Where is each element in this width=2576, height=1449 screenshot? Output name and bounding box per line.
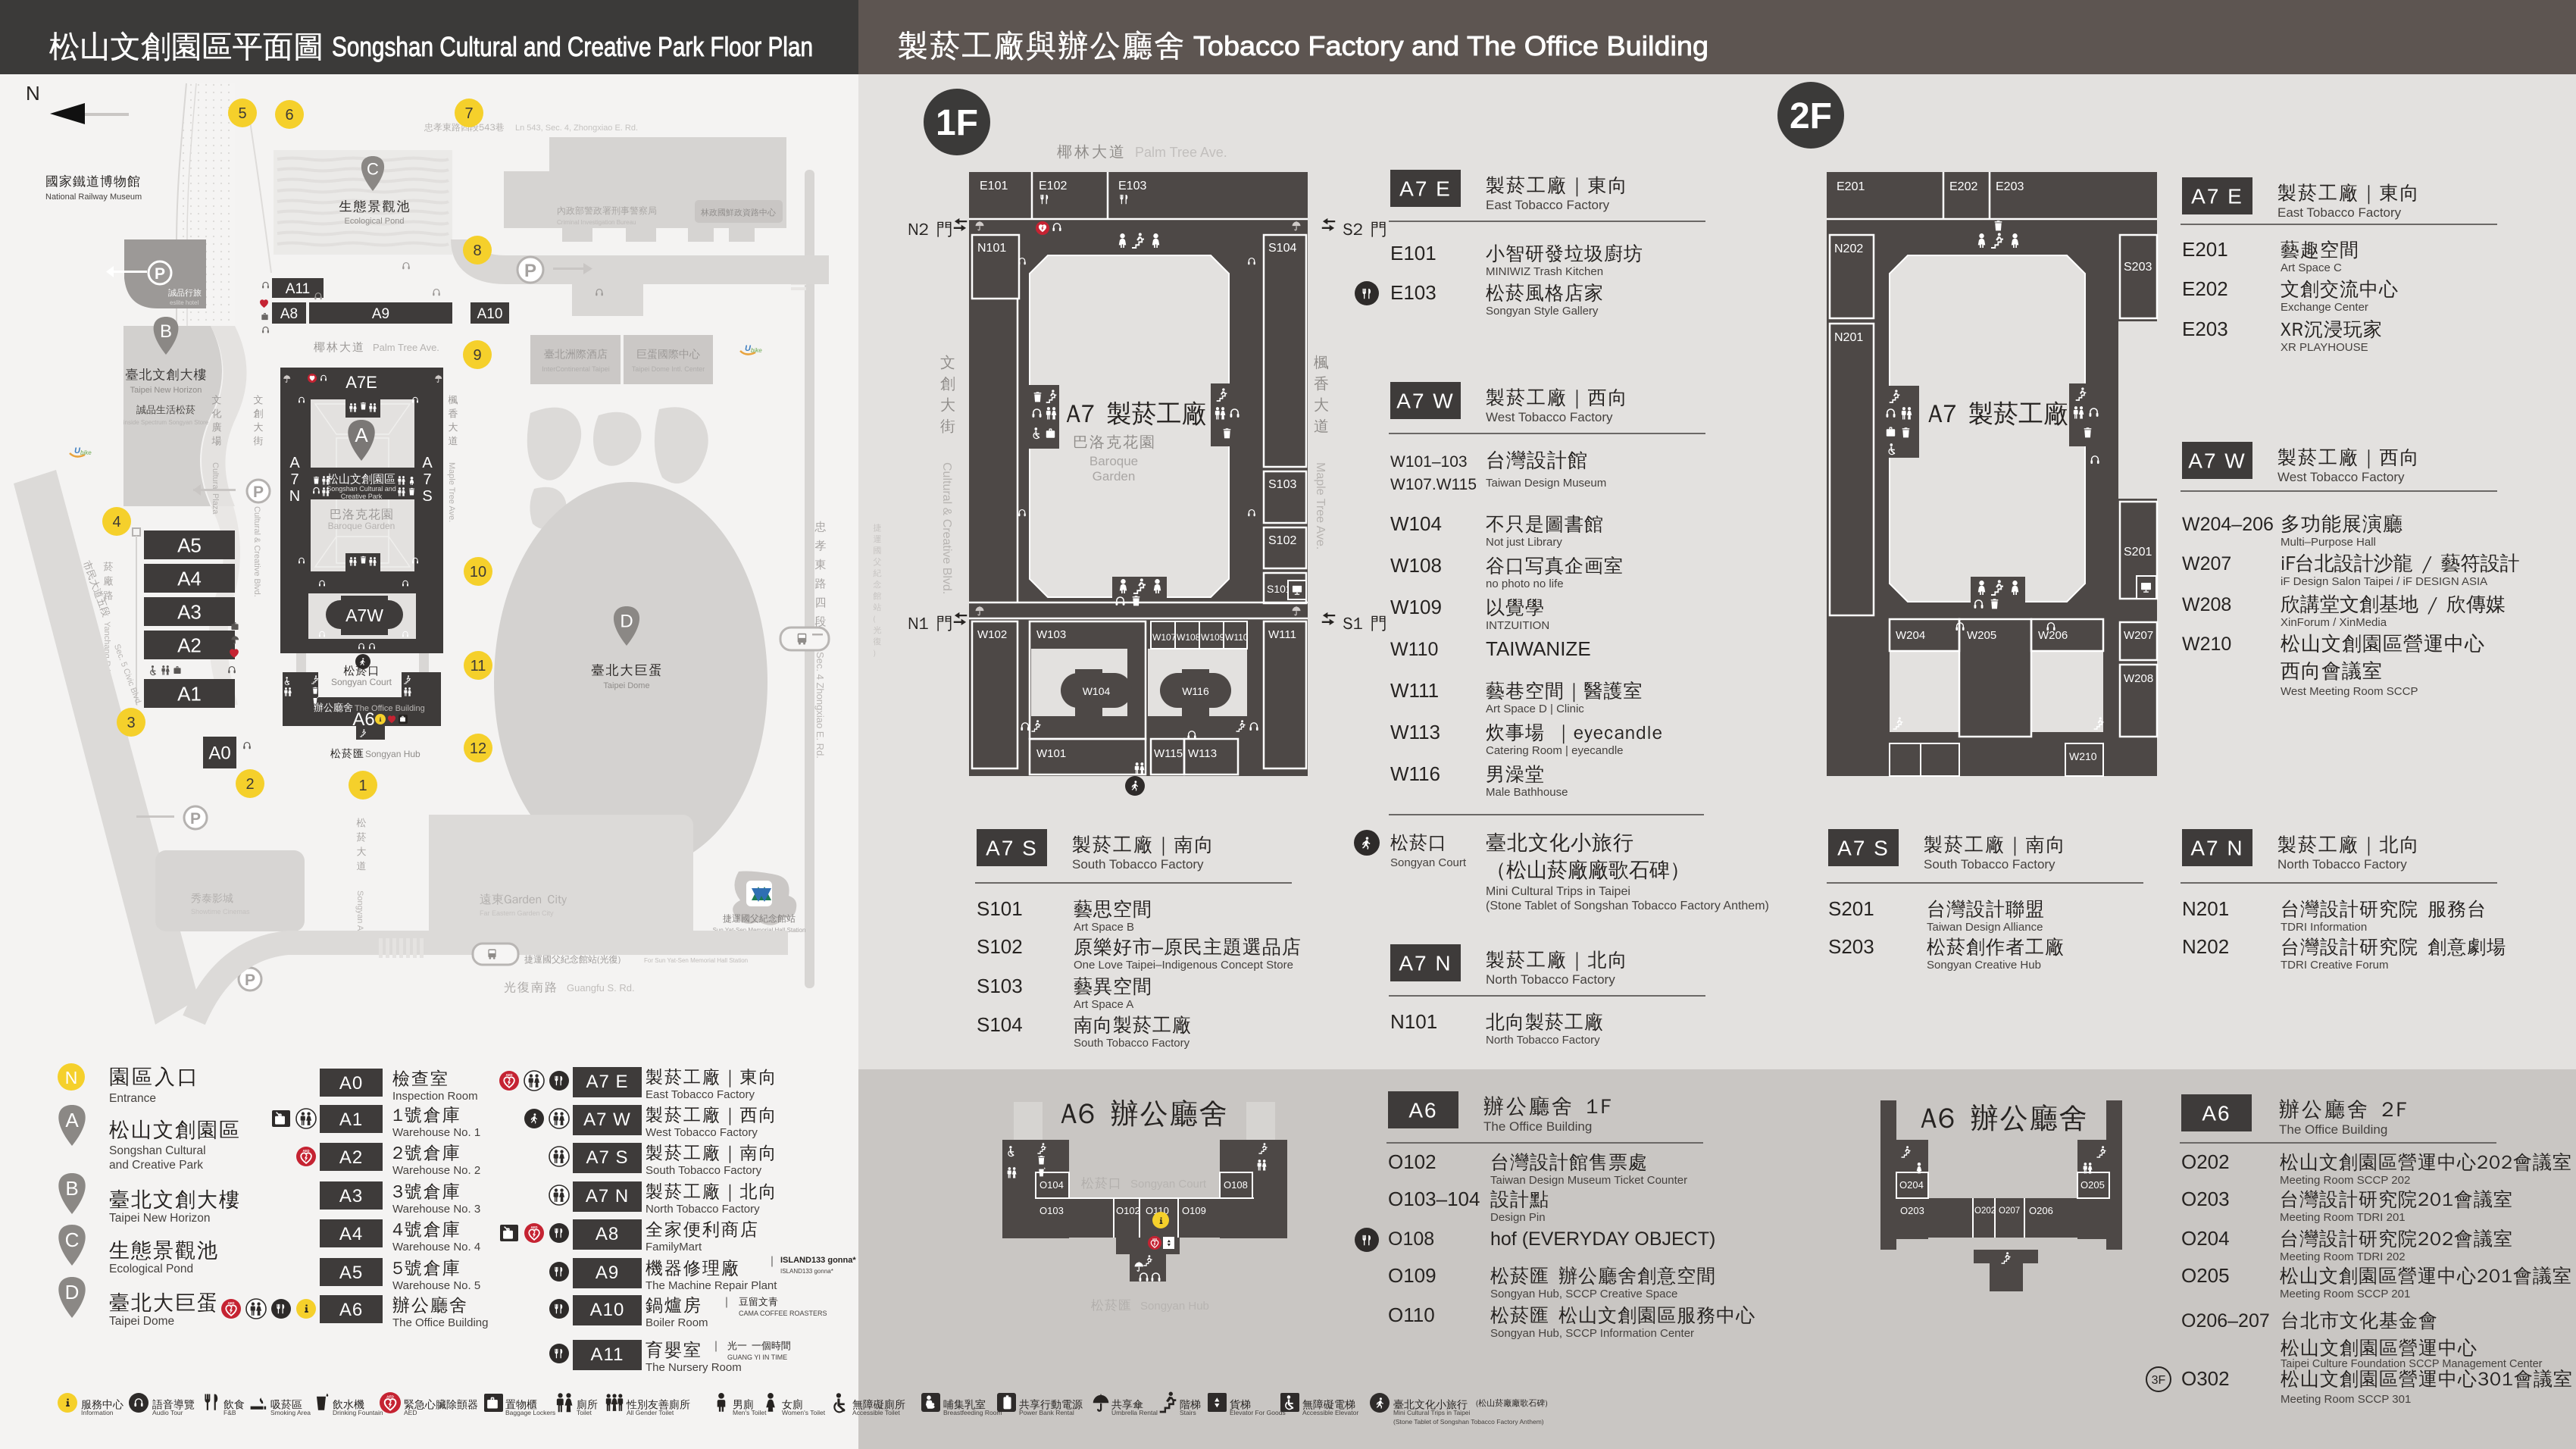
svg-text:Criminal Investigation Bureau: Criminal Investigation Bureau: [557, 219, 636, 226]
svg-text:W110: W110: [1390, 639, 1438, 660]
svg-text:W113: W113: [1188, 747, 1217, 760]
svg-text:O109: O109: [1182, 1205, 1206, 1216]
svg-text:O207: O207: [1999, 1206, 2020, 1216]
svg-text:Cultural & Creative Blvd.: Cultural & Creative Blvd.: [252, 506, 261, 597]
svg-text:A7 E: A7 E: [586, 1072, 628, 1092]
svg-text:InterContinental Taipei: InterContinental Taipei: [542, 365, 609, 373]
svg-text:W210: W210: [2069, 750, 2097, 762]
svg-text:N202: N202: [2182, 935, 2229, 958]
svg-text:7: 7: [464, 105, 473, 122]
svg-text:A: A: [289, 455, 300, 471]
svg-text:CAMA COFFEE ROASTERS: CAMA COFFEE ROASTERS: [739, 1310, 827, 1317]
svg-text:(Stone Tablet of Songshan Toba: (Stone Tablet of Songshan Tobacco Factor…: [1393, 1418, 1544, 1426]
svg-text:D: D: [620, 612, 633, 632]
svg-text:Warehouse No. 5: Warehouse No. 5: [392, 1279, 480, 1292]
svg-text:North Tobacco Factory: North Tobacco Factory: [646, 1203, 760, 1216]
svg-text:South Tobacco Factory: South Tobacco Factory: [1072, 857, 1204, 872]
svg-text:Audio Tour: Audio Tour: [152, 1409, 183, 1416]
svg-text:W208: W208: [2124, 672, 2153, 685]
svg-text:D: D: [65, 1281, 80, 1303]
svg-text:Meeting Room TDRI 202: Meeting Room TDRI 202: [2280, 1250, 2406, 1263]
svg-text:Warehouse No. 3: Warehouse No. 3: [392, 1203, 480, 1216]
svg-text:A5: A5: [177, 534, 202, 556]
svg-text:N201: N201: [2182, 897, 2229, 920]
svg-text:A7 W: A7 W: [1396, 390, 1454, 413]
svg-text:A11: A11: [286, 281, 310, 297]
svg-text:West Meeting Room SCCP: West Meeting Room SCCP: [2281, 685, 2418, 698]
svg-text:W104: W104: [1083, 685, 1111, 697]
svg-text:Maple Tree Ave.: Maple Tree Ave.: [1314, 462, 1327, 549]
svg-text:A3: A3: [339, 1186, 363, 1206]
svg-text:Taipei Dome: Taipei Dome: [603, 681, 649, 690]
svg-text:National Railway Museum: National Railway Museum: [45, 192, 142, 202]
svg-text:ISLAND133 gonna*: ISLAND133 gonna*: [780, 1256, 856, 1265]
svg-text:W108: W108: [1177, 632, 1201, 643]
svg-text:Ln 543, Sec. 4, Zhongxiao E. R: Ln 543, Sec. 4, Zhongxiao E. Rd.: [515, 124, 638, 133]
svg-text:S104: S104: [1268, 242, 1296, 255]
svg-text:Songyan Court: Songyan Court: [1390, 856, 1467, 869]
svg-text:Warehouse No. 4: Warehouse No. 4: [392, 1241, 480, 1253]
svg-text:For Sun Yat-Sen Memorial Hall: For Sun Yat-Sen Memorial Hall Station: [644, 957, 748, 964]
svg-text:Guangfu S. Rd.: Guangfu S. Rd.: [567, 982, 635, 994]
svg-text:A4: A4: [339, 1224, 363, 1244]
svg-text:E103: E103: [1118, 180, 1146, 192]
svg-text:One Love Taipei–Indigenous Con: One Love Taipei–Indigenous Concept Store: [1074, 959, 1293, 972]
svg-text:Sec. 4 Zhongxiao E. Rd.: Sec. 4 Zhongxiao E. Rd.: [814, 652, 826, 759]
svg-text:Accessible Toilet: Accessible Toilet: [852, 1409, 900, 1416]
svg-text:W111: W111: [1268, 628, 1296, 641]
svg-text:7: 7: [423, 471, 431, 488]
svg-text:A: A: [422, 455, 433, 471]
svg-text:ISLAND133 gonna*: ISLAND133 gonna*: [780, 1268, 833, 1275]
svg-text:O110: O110: [1388, 1303, 1435, 1326]
svg-text:North Tobacco Factory: North Tobacco Factory: [2277, 857, 2407, 872]
svg-text:S102: S102: [1268, 534, 1296, 547]
svg-text:A1: A1: [339, 1109, 363, 1130]
svg-text:South Tobacco Factory: South Tobacco Factory: [1074, 1037, 1190, 1050]
svg-text:O102: O102: [1116, 1205, 1140, 1216]
svg-text:Maple Tree Ave.: Maple Tree Ave.: [447, 462, 456, 522]
svg-text:Songshan Cultural and Creative: Songshan Cultural and Creative Park Floo…: [332, 31, 813, 62]
svg-text:P: P: [155, 265, 165, 283]
svg-text:Boiler Room: Boiler Room: [646, 1316, 708, 1329]
svg-text:A5: A5: [339, 1263, 363, 1283]
svg-text:Exchange Center: Exchange Center: [2281, 301, 2368, 314]
svg-text:P: P: [253, 484, 264, 501]
svg-text:O302: O302: [2181, 1367, 2230, 1390]
svg-text:A7 S: A7 S: [586, 1147, 628, 1168]
svg-text:East Tobacco Factory: East Tobacco Factory: [646, 1088, 755, 1101]
svg-text:B: B: [160, 321, 172, 342]
svg-text:C: C: [367, 160, 379, 179]
svg-text:A: A: [65, 1109, 79, 1131]
svg-text:Male Bathhouse: Male Bathhouse: [1486, 786, 1568, 799]
svg-text:O104: O104: [1039, 1179, 1064, 1191]
svg-text:A7E: A7E: [345, 373, 377, 392]
svg-text:O202: O202: [1974, 1206, 1996, 1216]
svg-text:3F: 3F: [2152, 1374, 2166, 1387]
svg-text:Far Eastern Garden City: Far Eastern Garden City: [480, 909, 554, 917]
svg-text:A7 W: A7 W: [2188, 449, 2246, 473]
svg-text:5: 5: [238, 105, 246, 122]
svg-text:and Creative Park: and Creative Park: [109, 1159, 203, 1172]
svg-text:9: 9: [473, 347, 481, 364]
svg-text:E101: E101: [980, 180, 1008, 192]
svg-text:A7 N: A7 N: [2190, 837, 2243, 860]
svg-text:The Nursery Room: The Nursery Room: [646, 1361, 742, 1374]
svg-text:W107: W107: [1152, 632, 1177, 643]
svg-text:8: 8: [473, 243, 481, 259]
svg-text:Entrance: Entrance: [109, 1092, 156, 1105]
svg-text:Smoking Area: Smoking Area: [270, 1409, 311, 1416]
svg-text:Art Space D | Clinic: Art Space D | Clinic: [1486, 703, 1584, 715]
svg-text:TDRI Creative Forum: TDRI Creative Forum: [2281, 959, 2389, 972]
svg-text:The Office Building: The Office Building: [2279, 1122, 2387, 1137]
svg-text:W104: W104: [1390, 512, 1442, 535]
svg-text:O108: O108: [1224, 1179, 1248, 1191]
svg-text:O103: O103: [1039, 1205, 1064, 1216]
svg-text:O205: O205: [2080, 1179, 2105, 1191]
svg-text:S201: S201: [1828, 897, 1874, 920]
svg-text:A2: A2: [339, 1147, 363, 1168]
svg-text:4: 4: [112, 514, 120, 530]
svg-text:W109: W109: [1201, 632, 1225, 643]
svg-text:Cultural Plaza: Cultural Plaza: [211, 462, 220, 515]
svg-text:N: N: [65, 1068, 78, 1088]
svg-text:A7 N: A7 N: [1399, 952, 1452, 975]
svg-text:W210: W210: [2182, 634, 2231, 655]
svg-text:West Tobacco Factory: West Tobacco Factory: [1486, 410, 1613, 424]
svg-text:S103: S103: [1268, 478, 1296, 491]
svg-text:Songshan Cultural and: Songshan Cultural and: [327, 485, 396, 493]
svg-text:P: P: [524, 261, 536, 281]
svg-text:W207: W207: [2182, 553, 2231, 574]
svg-text:no photo no life: no photo no life: [1486, 577, 1564, 590]
svg-text:Mini Cultural Trips in Taipei: Mini Cultural Trips in Taipei: [1393, 1409, 1471, 1416]
svg-text:S103: S103: [977, 975, 1023, 997]
svg-text:S101: S101: [977, 897, 1023, 920]
svg-text:Baroque Garden: Baroque Garden: [328, 521, 395, 531]
svg-text:inside Spectrum Songyan Store: inside Spectrum Songyan Store: [123, 419, 209, 426]
svg-text:Stairs: Stairs: [1180, 1409, 1196, 1416]
svg-text:bike: bike: [80, 449, 92, 456]
svg-text:E201: E201: [2182, 238, 2228, 261]
svg-text:AED: AED: [386, 1395, 394, 1399]
svg-text:Ecological Pond: Ecological Pond: [345, 217, 405, 226]
svg-text:W207: W207: [2124, 629, 2153, 642]
svg-text:Art Space A: Art Space A: [1074, 998, 1133, 1011]
svg-text:S203: S203: [1828, 935, 1874, 958]
svg-text:Taipei Culture Foundation SCCP: Taipei Culture Foundation SCCP Managemen…: [2281, 1358, 2543, 1370]
svg-text:2: 2: [245, 776, 254, 793]
svg-text:E202: E202: [2182, 277, 2228, 300]
svg-text:W103: W103: [1036, 628, 1066, 641]
svg-text:Creative Park: Creative Park: [341, 493, 383, 500]
svg-text:W107.W115: W107.W115: [1390, 476, 1477, 493]
svg-text:W109: W109: [1390, 596, 1442, 618]
svg-text:TDRI Information: TDRI Information: [2281, 921, 2367, 934]
svg-text:Taipei New Horizon: Taipei New Horizon: [130, 386, 202, 395]
svg-text:iF Design Salon Taipei / iF DE: iF Design Salon Taipei / iF DESIGN ASIA: [2281, 575, 2487, 588]
svg-text:6: 6: [285, 107, 293, 124]
svg-text:Warehouse No. 1: Warehouse No. 1: [392, 1126, 480, 1139]
svg-text:W205: W205: [1967, 629, 1996, 642]
svg-text:A7W: A7W: [345, 606, 383, 625]
svg-text:hof (EVERYDAY OBJECT): hof (EVERYDAY OBJECT): [1490, 1228, 1715, 1250]
svg-text:W206: W206: [2038, 629, 2068, 642]
svg-text:The Office Building: The Office Building: [1483, 1119, 1592, 1134]
svg-text:Showtime Cinemas: Showtime Cinemas: [191, 908, 250, 915]
svg-text:A6: A6: [352, 709, 374, 730]
svg-text:1: 1: [358, 778, 367, 794]
svg-text:West Tobacco Factory: West Tobacco Factory: [646, 1126, 758, 1139]
svg-text:AED: AED: [530, 1225, 537, 1229]
svg-text:Art Space B: Art Space B: [1074, 921, 1134, 934]
svg-text:O204: O204: [2181, 1227, 2230, 1250]
svg-text:N101: N101: [1390, 1010, 1437, 1033]
svg-text:All Gender Toilet: All Gender Toilet: [627, 1409, 674, 1416]
svg-text:W108: W108: [1390, 554, 1442, 577]
svg-text:XinForum / XinMedia: XinForum / XinMedia: [2281, 616, 2387, 629]
svg-text:The Office Building: The Office Building: [392, 1316, 488, 1329]
svg-text:Songyan Hub, SCCP Information: Songyan Hub, SCCP Information Center: [1490, 1327, 1694, 1340]
svg-text:W110: W110: [1225, 632, 1249, 643]
svg-text:E202: E202: [1949, 180, 1977, 193]
svg-text:Multi–Purpose Hall: Multi–Purpose Hall: [2281, 536, 2376, 549]
svg-text:Meeting Room SCCP 202: Meeting Room SCCP 202: [2280, 1174, 2410, 1187]
svg-text:GUANG YI IN TIME: GUANG YI IN TIME: [727, 1354, 787, 1361]
svg-text:Taiwan Design Museum: Taiwan Design Museum: [1486, 477, 1606, 490]
svg-text:Warehouse No. 2: Warehouse No. 2: [392, 1164, 480, 1177]
svg-text:N201: N201: [1834, 331, 1863, 344]
svg-text:O109: O109: [1388, 1264, 1436, 1287]
svg-text:A7 E: A7 E: [2191, 185, 2243, 208]
svg-text:AED: AED: [404, 1409, 417, 1416]
svg-text:AED: AED: [505, 1073, 512, 1077]
svg-text:Songyan Court: Songyan Court: [1130, 1178, 1207, 1191]
svg-text:MINIWIZ Trash Kitchen: MINIWIZ Trash Kitchen: [1486, 265, 1603, 278]
svg-text:Songyan Hub: Songyan Hub: [1140, 1300, 1209, 1313]
svg-text:XR PLAYHOUSE: XR PLAYHOUSE: [2281, 341, 2368, 354]
svg-text:Taiwan Design Alliance: Taiwan Design Alliance: [1927, 921, 2043, 934]
svg-text:W204–206: W204–206: [2182, 514, 2274, 535]
svg-text:Art Space C: Art Space C: [2281, 261, 2342, 274]
svg-text:W116: W116: [1182, 685, 1209, 697]
svg-text:A7 S: A7 S: [986, 837, 1038, 860]
svg-text:12: 12: [470, 740, 486, 757]
svg-text:10: 10: [470, 564, 486, 581]
svg-text:W102: W102: [977, 628, 1007, 641]
svg-text:E203: E203: [2182, 318, 2228, 340]
svg-text:Taiwan Design Museum Ticket Co: Taiwan Design Museum Ticket Counter: [1490, 1174, 1687, 1187]
svg-text:S203: S203: [2124, 261, 2152, 274]
svg-text:Palm Tree Ave.: Palm Tree Ave.: [1135, 145, 1227, 160]
svg-text:East Tobacco Factory: East Tobacco Factory: [1486, 198, 1610, 212]
svg-text:Catering Room | eyecandle: Catering Room | eyecandle: [1486, 744, 1624, 757]
svg-text:Not just Library: Not just Library: [1486, 536, 1562, 549]
svg-text:W115: W115: [1154, 747, 1183, 760]
svg-text:E201: E201: [1837, 180, 1865, 193]
svg-text:S102: S102: [977, 935, 1023, 958]
svg-text:W113: W113: [1390, 721, 1440, 743]
svg-text:North Tobacco Factory: North Tobacco Factory: [1486, 972, 1615, 987]
svg-text:AED: AED: [302, 1149, 309, 1153]
svg-text:E102: E102: [1039, 180, 1067, 192]
svg-text:bike: bike: [751, 347, 762, 354]
svg-text:Garden: Garden: [1093, 469, 1136, 484]
svg-text:O202: O202: [2181, 1150, 2230, 1173]
svg-text:C: C: [65, 1228, 80, 1251]
svg-text:Palm Tree Ave.: Palm Tree Ave.: [373, 342, 439, 353]
svg-text:A10: A10: [590, 1300, 625, 1320]
svg-text:A11: A11: [591, 1344, 624, 1365]
svg-text:A1: A1: [177, 682, 202, 705]
svg-text:Meeting Room TDRI 201: Meeting Room TDRI 201: [2280, 1211, 2406, 1224]
svg-text:A10: A10: [477, 306, 503, 322]
svg-text:A8: A8: [280, 306, 298, 322]
svg-text:(Stone Tablet of Songshan Toba: (Stone Tablet of Songshan Tobacco Factor…: [1486, 900, 1769, 912]
svg-text:A2: A2: [177, 634, 202, 656]
svg-text:7: 7: [290, 471, 299, 488]
svg-text:A0: A0: [339, 1073, 363, 1094]
svg-text:A3: A3: [177, 600, 202, 623]
svg-text:3: 3: [127, 715, 135, 731]
svg-text:O108: O108: [1388, 1228, 1434, 1250]
svg-text:Songyan Hub, SCCP Creative Spa: Songyan Hub, SCCP Creative Space: [1490, 1288, 1677, 1300]
svg-text:E101: E101: [1390, 242, 1436, 264]
svg-text:A8: A8: [596, 1224, 619, 1244]
svg-text:2F: 2F: [1790, 96, 1832, 136]
svg-text:AED: AED: [227, 1301, 234, 1305]
svg-text:P: P: [190, 810, 201, 828]
svg-text:P: P: [245, 972, 255, 989]
svg-text:Toilet: Toilet: [577, 1409, 592, 1416]
svg-text:North Tobacco Factory: North Tobacco Factory: [1486, 1034, 1600, 1047]
svg-text:Information: Information: [81, 1409, 114, 1416]
svg-text:N: N: [26, 82, 40, 105]
svg-text:A: A: [355, 424, 368, 446]
svg-text:E203: E203: [1996, 180, 2024, 193]
svg-text:Women's Toilet: Women's Toilet: [782, 1409, 826, 1416]
svg-text:South Tobacco Factory: South Tobacco Factory: [646, 1164, 762, 1177]
svg-text:A9: A9: [596, 1263, 619, 1283]
svg-text:E103: E103: [1390, 281, 1436, 304]
svg-text:A7 N: A7 N: [586, 1186, 629, 1206]
svg-text:Breastfeeding Room: Breastfeeding Room: [943, 1409, 1002, 1416]
svg-text:A6: A6: [339, 1300, 363, 1320]
svg-text:Taipei Dome Intl. Center: Taipei Dome Intl. Center: [632, 365, 705, 373]
svg-text:Inspection Room: Inspection Room: [392, 1090, 478, 1103]
svg-text:Accessible Elevator: Accessible Elevator: [1302, 1409, 1358, 1416]
svg-text:O103–104: O103–104: [1388, 1188, 1480, 1210]
svg-text:A4: A4: [177, 567, 202, 590]
svg-text:FamilyMart: FamilyMart: [646, 1241, 702, 1253]
svg-text:Tobacco Factory and The Office: Tobacco Factory and The Office Building: [1193, 30, 1708, 61]
svg-text:S104: S104: [977, 1013, 1023, 1036]
svg-text:F&B: F&B: [224, 1409, 236, 1416]
svg-text:A6: A6: [1408, 1099, 1437, 1122]
svg-text:Men's Toilet: Men's Toilet: [733, 1409, 767, 1416]
svg-text:W101: W101: [1036, 747, 1066, 760]
svg-text:eslite hotel: eslite hotel: [170, 299, 199, 306]
svg-text:West Tobacco Factory: West Tobacco Factory: [2277, 470, 2405, 484]
svg-text:O204: O204: [1899, 1179, 1924, 1191]
svg-text:A7 W: A7 W: [583, 1109, 631, 1130]
svg-text:AED: AED: [1152, 1238, 1158, 1241]
svg-text:Taipei Dome: Taipei Dome: [109, 1315, 174, 1328]
svg-text:N101: N101: [977, 242, 1006, 255]
svg-text:Songshan Cultural: Songshan Cultural: [109, 1144, 206, 1157]
svg-text:Elevator For Goods: Elevator For Goods: [1230, 1409, 1286, 1416]
svg-text:The Machine Repair Plant: The Machine Repair Plant: [646, 1279, 777, 1292]
svg-text:O203: O203: [1900, 1205, 1924, 1216]
svg-text:S201: S201: [2124, 546, 2152, 559]
svg-text:A0: A0: [208, 743, 230, 764]
svg-text:Meeting Room SCCP 301: Meeting Room SCCP 301: [2281, 1393, 2411, 1406]
svg-text:1F: 1F: [936, 103, 978, 143]
svg-text:TAIWANIZE: TAIWANIZE: [1486, 637, 1591, 660]
svg-text:Meeting Room SCCP 201: Meeting Room SCCP 201: [2280, 1288, 2410, 1300]
svg-text:Mini Cultural Trips in Taipei: Mini Cultural Trips in Taipei: [1486, 885, 1630, 898]
svg-text:A6: A6: [2202, 1102, 2231, 1125]
svg-text:O102: O102: [1388, 1150, 1436, 1173]
svg-text:N: N: [289, 488, 300, 505]
svg-text:East Tobacco Factory: East Tobacco Factory: [2277, 205, 2402, 220]
svg-text:W116: W116: [1390, 762, 1440, 785]
svg-text:A7 S: A7 S: [1837, 837, 1890, 860]
svg-text:Songyan Hub: Songyan Hub: [365, 749, 420, 759]
svg-text:Taipei New Horizon: Taipei New Horizon: [109, 1212, 211, 1225]
svg-text:B: B: [65, 1177, 78, 1200]
svg-text:W111: W111: [1390, 679, 1439, 702]
svg-text:11: 11: [470, 658, 486, 674]
svg-text:Baggage Lockers: Baggage Lockers: [505, 1409, 555, 1416]
svg-text:S: S: [422, 488, 432, 505]
svg-text:O206: O206: [2029, 1205, 2053, 1216]
svg-text:Baroque: Baroque: [1089, 454, 1138, 468]
svg-text:W101–103: W101–103: [1390, 453, 1468, 471]
svg-text:O205: O205: [2181, 1264, 2230, 1287]
svg-text:Power Bank Rental: Power Bank Rental: [1019, 1409, 1074, 1416]
svg-text:W204: W204: [1896, 629, 1925, 642]
svg-text:Drinking Fountain: Drinking Fountain: [333, 1409, 383, 1416]
svg-text:South Tobacco Factory: South Tobacco Factory: [1924, 857, 2055, 872]
svg-text:Ecological Pond: Ecological Pond: [109, 1263, 193, 1275]
svg-text:Umbrella Rental: Umbrella Rental: [1111, 1409, 1158, 1416]
svg-text:A9: A9: [372, 306, 389, 322]
svg-text:Songyan Court: Songyan Court: [331, 677, 392, 687]
svg-text:A7 E: A7 E: [1399, 177, 1452, 201]
svg-text:O203: O203: [2181, 1188, 2230, 1210]
svg-text:INTZUITION: INTZUITION: [1486, 619, 1549, 632]
svg-text:W208: W208: [2182, 594, 2231, 615]
svg-text:N202: N202: [1834, 243, 1863, 255]
svg-text:Songyan Creative Hub: Songyan Creative Hub: [1927, 959, 2041, 972]
svg-text:O206–207: O206–207: [2181, 1310, 2270, 1332]
svg-text:Songyan Style Gallery: Songyan Style Gallery: [1486, 305, 1599, 318]
svg-text:Cultural & Creative Blvd.: Cultural & Creative Blvd.: [940, 462, 953, 594]
svg-text:Design Pin: Design Pin: [1490, 1211, 1546, 1224]
